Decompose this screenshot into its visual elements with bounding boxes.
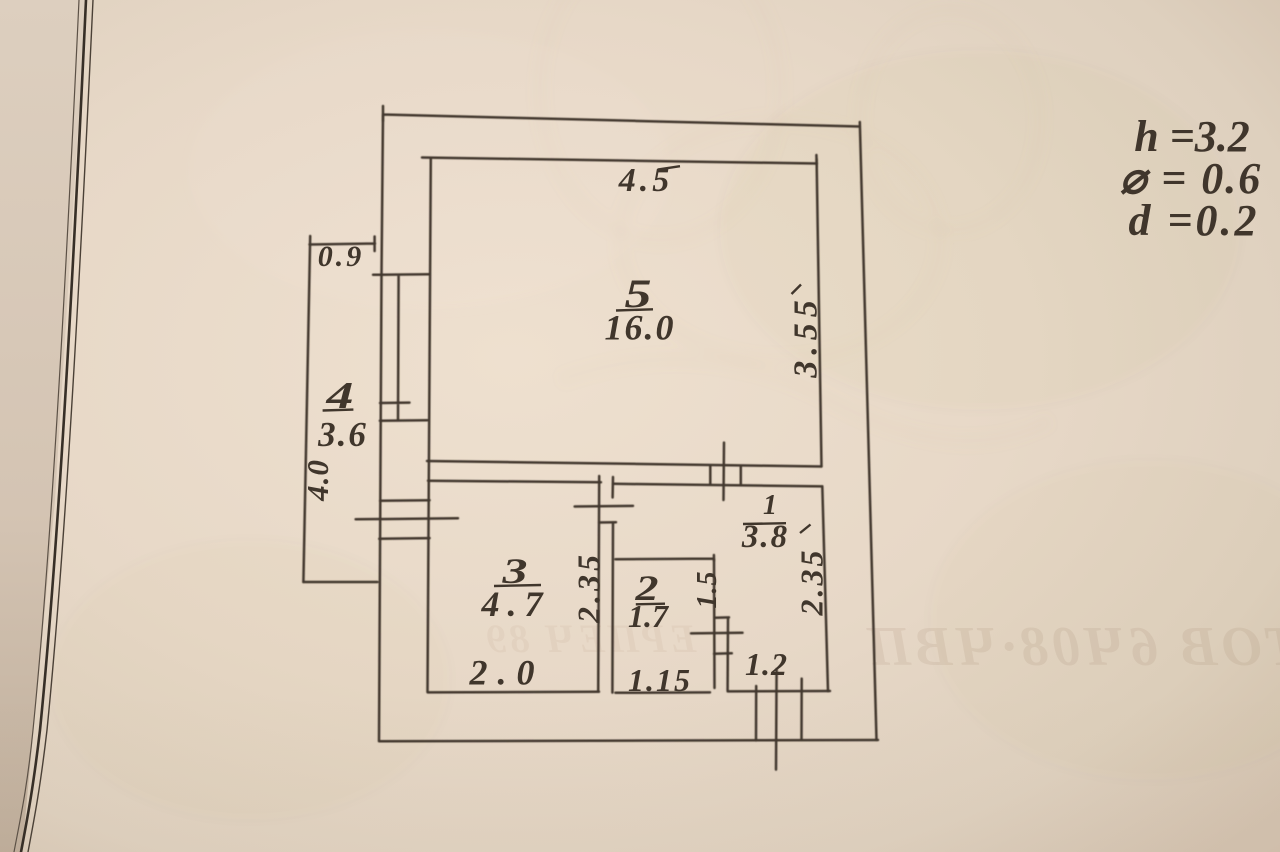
svg-text:2.0: 2.0 xyxy=(469,653,545,693)
svg-text:16.0: 16.0 xyxy=(605,308,676,348)
svg-text:1: 1 xyxy=(763,490,777,521)
svg-text:3.6: 3.6 xyxy=(317,415,368,454)
svg-text:2.35: 2.35 xyxy=(571,551,607,624)
svg-text:3.8: 3.8 xyxy=(741,519,789,555)
svg-text:4.0: 4.0 xyxy=(300,459,335,502)
svg-text:4.7: 4.7 xyxy=(481,584,551,624)
svg-text:1.2: 1.2 xyxy=(745,646,788,682)
svg-text:3.55: 3.55 xyxy=(788,294,825,379)
svg-text:2.35: 2.35 xyxy=(794,548,830,617)
svg-text:ТОВ 6Ч08·ЧВП: ТОВ 6Ч08·ЧВП xyxy=(864,616,1280,678)
svg-text:1.5: 1.5 xyxy=(692,571,723,609)
svg-text:1.15: 1.15 xyxy=(628,662,692,698)
svg-text:0.9: 0.9 xyxy=(318,240,365,273)
svg-text:d =0.2: d =0.2 xyxy=(1128,196,1259,245)
svg-text:1.7: 1.7 xyxy=(628,598,670,634)
